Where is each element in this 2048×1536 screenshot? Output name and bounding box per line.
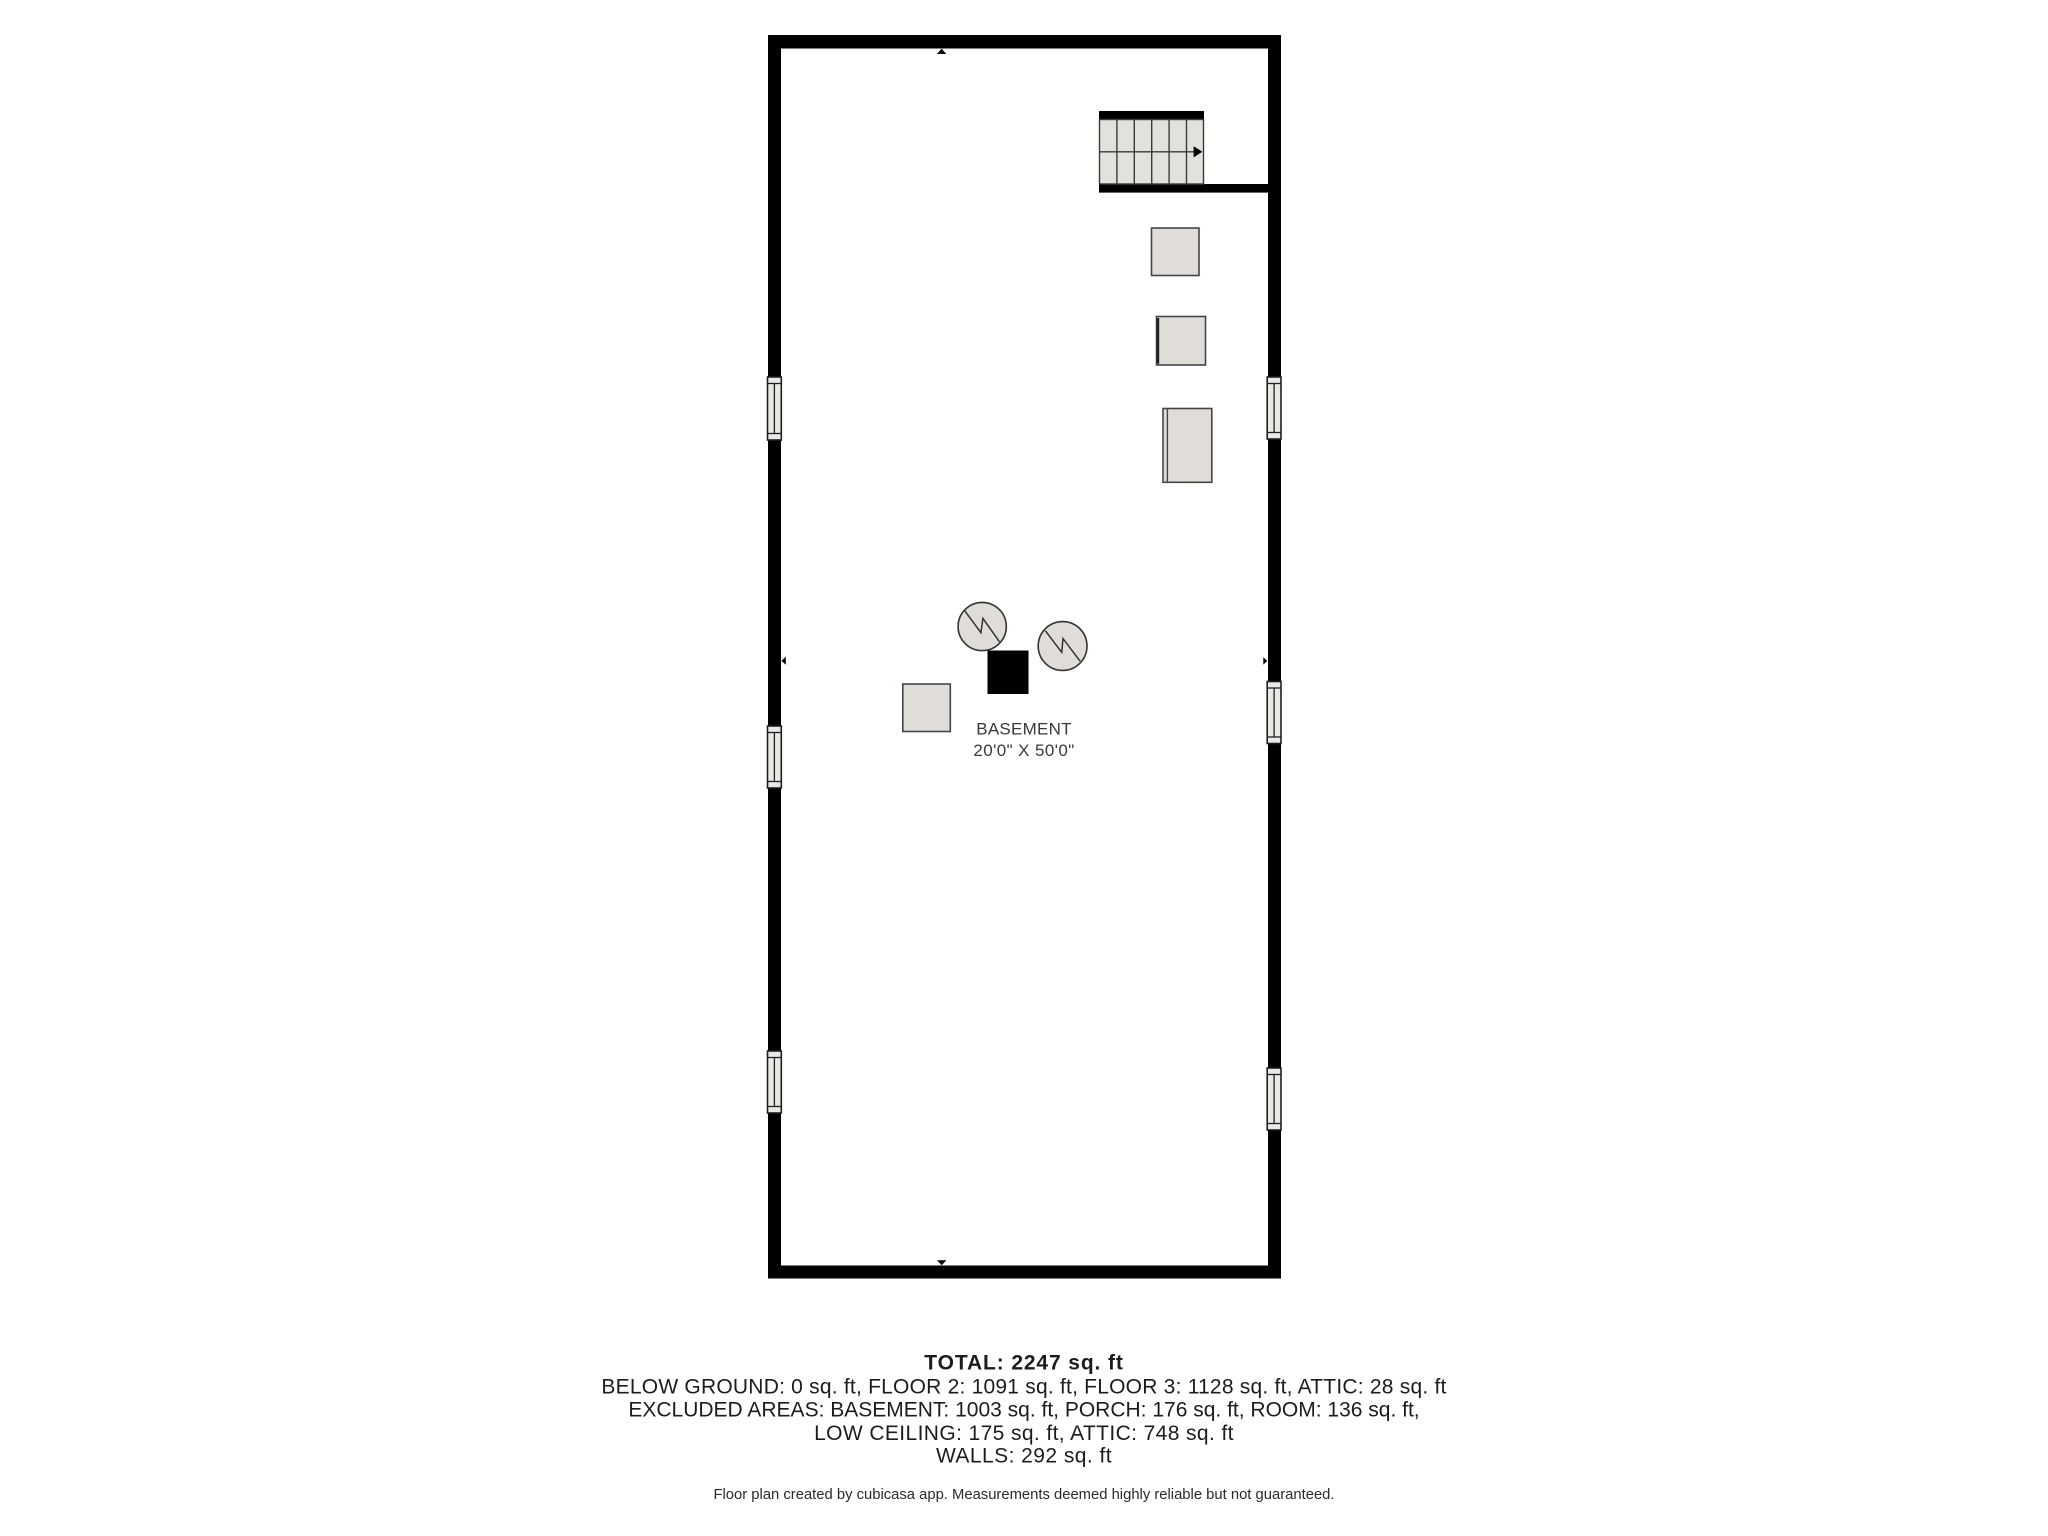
svg-text:LOW CEILING: 175 sq. ft, ATTIC: LOW CEILING: 175 sq. ft, ATTIC: 748 sq. … [814,1422,1234,1445]
svg-text:20'0" X 50'0": 20'0" X 50'0" [973,741,1074,760]
svg-text:BASEMENT: BASEMENT [976,719,1072,738]
svg-text:BELOW GROUND: 0 sq. ft, FLOOR: BELOW GROUND: 0 sq. ft, FLOOR 2: 1091 sq… [601,1375,1446,1398]
svg-text:WALLS: 292 sq. ft: WALLS: 292 sq. ft [936,1445,1112,1468]
svg-text:TOTAL: 2247 sq. ft: TOTAL: 2247 sq. ft [924,1351,1123,1374]
svg-text:Floor plan created by cubicasa: Floor plan created by cubicasa app. Meas… [713,1487,1334,1503]
svg-text:EXCLUDED AREAS: BASEMENT: 1003: EXCLUDED AREAS: BASEMENT: 1003 sq. ft, P… [628,1399,1419,1422]
